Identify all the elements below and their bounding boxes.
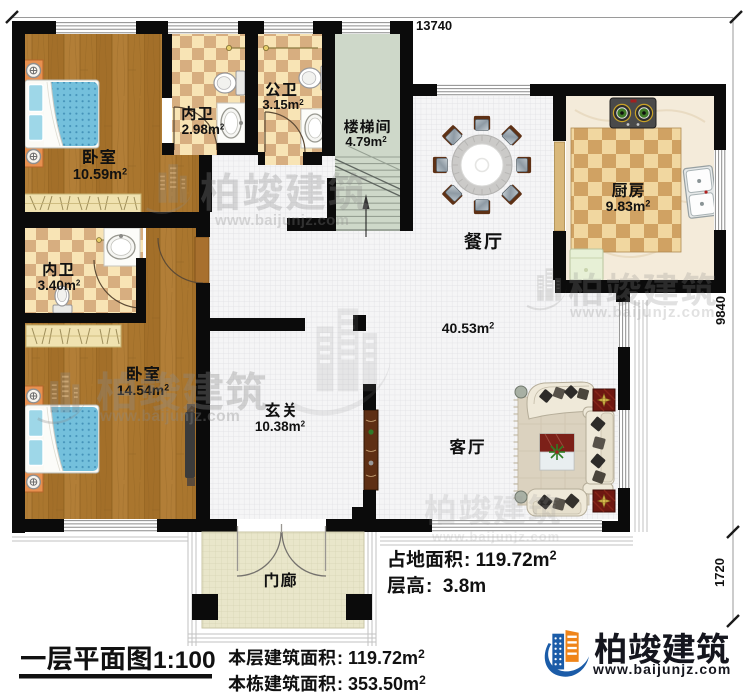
svg-text:www.baijunjz.com: www.baijunjz.com — [431, 529, 560, 544]
svg-text:: 119.72m2: : 119.72m2 — [464, 549, 557, 572]
svg-text:3.40m2: 3.40m2 — [38, 278, 81, 293]
svg-text:1:100: 1:100 — [153, 647, 216, 674]
svg-text:1720: 1720 — [712, 558, 727, 587]
svg-text:www.baijunjz.com: www.baijunjz.com — [592, 661, 731, 677]
svg-text:9.83m2: 9.83m2 — [606, 198, 651, 214]
svg-text:: 353.50m2: : 353.50m2 — [337, 673, 426, 694]
svg-text:4.79m2: 4.79m2 — [345, 134, 387, 149]
svg-text:2.98m2: 2.98m2 — [182, 122, 225, 137]
svg-text:40.53m2: 40.53m2 — [442, 320, 495, 336]
svg-text:www.baijunjz.com: www.baijunjz.com — [569, 304, 715, 321]
svg-text:: 3.8m: : 3.8m — [426, 576, 486, 597]
svg-text:www.baijunjz.com: www.baijunjz.com — [99, 408, 240, 425]
svg-text:: 119.72m2: : 119.72m2 — [337, 647, 425, 668]
svg-text:www.baijunjz.com: www.baijunjz.com — [214, 212, 349, 229]
svg-text:3.15m2: 3.15m2 — [262, 97, 304, 112]
svg-text:10.59m2: 10.59m2 — [73, 166, 127, 183]
svg-text:10.38m2: 10.38m2 — [255, 419, 306, 434]
svg-text:13740: 13740 — [416, 18, 452, 33]
